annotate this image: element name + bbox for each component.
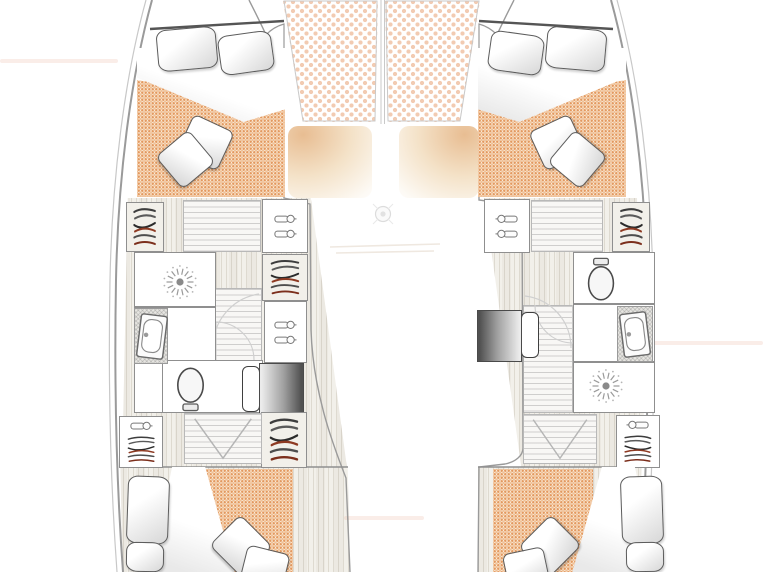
hanger-rail-icon [618, 206, 643, 248]
nav-seat [259, 363, 304, 415]
pillow [626, 542, 665, 572]
pillow [155, 25, 218, 72]
hanger-hook-icon [626, 419, 651, 430]
hanger-rail-icon [623, 434, 653, 464]
pillow [620, 475, 664, 544]
pillow [544, 25, 607, 72]
hanger-hook-icon [273, 228, 298, 239]
stairs-down-icon [185, 414, 261, 463]
shower-head-icon [586, 366, 626, 406]
wardrobe-rail-locker [612, 202, 650, 252]
sink-icon [618, 310, 651, 358]
stairs-down-icon [524, 415, 596, 463]
wardrobe-hook-locker [264, 301, 307, 363]
stairs-aft-port [184, 413, 262, 464]
wardrobe-rail-locker [261, 412, 307, 468]
fixtures-layer [0, 0, 763, 572]
pillow [126, 542, 165, 572]
toilet-icon [172, 365, 209, 412]
hanger-rail-icon [268, 416, 300, 464]
nav-seat [477, 310, 522, 362]
wardrobe-hook-rail-locker [616, 415, 660, 468]
wardrobe-hook-rail-locker [119, 416, 163, 468]
wardrobe-hook-locker [484, 199, 530, 253]
pillow [216, 29, 275, 76]
wardrobe-rail-locker [126, 202, 164, 252]
wardrobe-rail-locker [262, 254, 308, 301]
hanger-rail-icon [126, 435, 156, 464]
wall [573, 303, 655, 305]
hanger-rail-icon [132, 206, 157, 248]
hanger-rail-icon [269, 258, 301, 297]
wardrobe-hook-locker [262, 199, 308, 253]
stairs-aft-starboard [523, 414, 597, 464]
hanger-hook-icon [273, 334, 298, 345]
catamaran-floorplan [0, 0, 763, 572]
sink-icon [135, 312, 168, 360]
seat-back [242, 366, 260, 412]
pillow [126, 475, 170, 544]
pillow [486, 29, 545, 76]
shower-head-icon [160, 262, 200, 302]
toilet-icon [583, 257, 619, 303]
hanger-hook-icon [273, 213, 298, 224]
hanger-hook-icon [495, 228, 520, 239]
seat-back [521, 312, 539, 358]
hanger-hook-icon [495, 213, 520, 224]
hanger-hook-icon [129, 420, 154, 431]
hanger-hook-icon [273, 319, 298, 330]
